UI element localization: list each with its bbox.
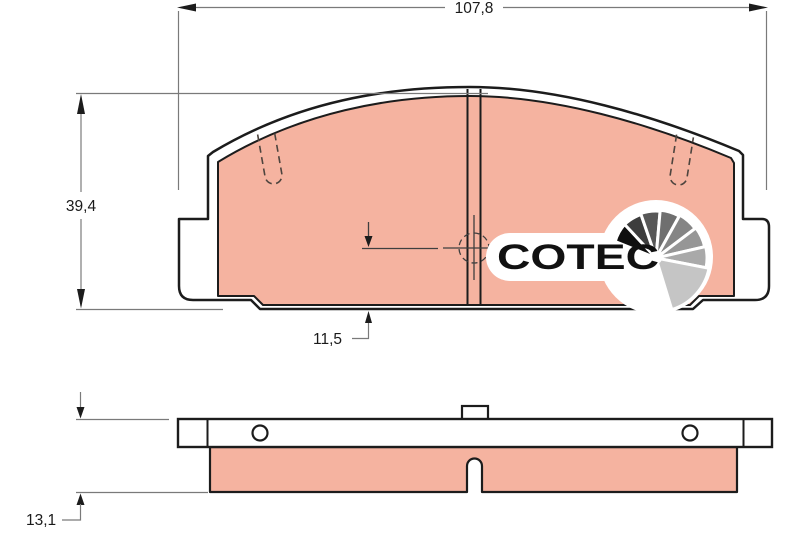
- dimension-arrow-up-icon: [365, 311, 372, 323]
- leader-line: [62, 504, 81, 520]
- logo-text: COTEC: [497, 238, 659, 277]
- drawing-canvas: 107,8 39,4 11,5 COTEC: [0, 0, 800, 533]
- dimension-arrow-up-icon: [77, 94, 85, 114]
- rivet-hole-right: [683, 426, 698, 441]
- dimension-thickness: 13,1: [26, 392, 208, 529]
- dimension-label: 107,8: [455, 0, 494, 17]
- friction-material-side: [210, 447, 737, 492]
- dimension-arrow-up-icon: [77, 494, 85, 506]
- dimension-label: 13,1: [26, 512, 56, 529]
- dimension-arrow-down-icon: [77, 407, 85, 419]
- dimension-label: 11,5: [313, 331, 342, 348]
- leader-line: [352, 316, 369, 339]
- dimension-arrow-down-icon: [77, 289, 85, 309]
- rivet-hole-left: [253, 426, 268, 441]
- dimension-arrow-right-icon: [749, 4, 768, 12]
- brake-pad-technical-drawing: 107,8 39,4 11,5 COTEC: [0, 0, 800, 533]
- dimension-center-to-bottom: 11,5: [313, 311, 372, 348]
- dimension-arrow-left-icon: [177, 4, 196, 12]
- side-view-drawing: [178, 406, 772, 492]
- dimension-label: 39,4: [66, 198, 97, 215]
